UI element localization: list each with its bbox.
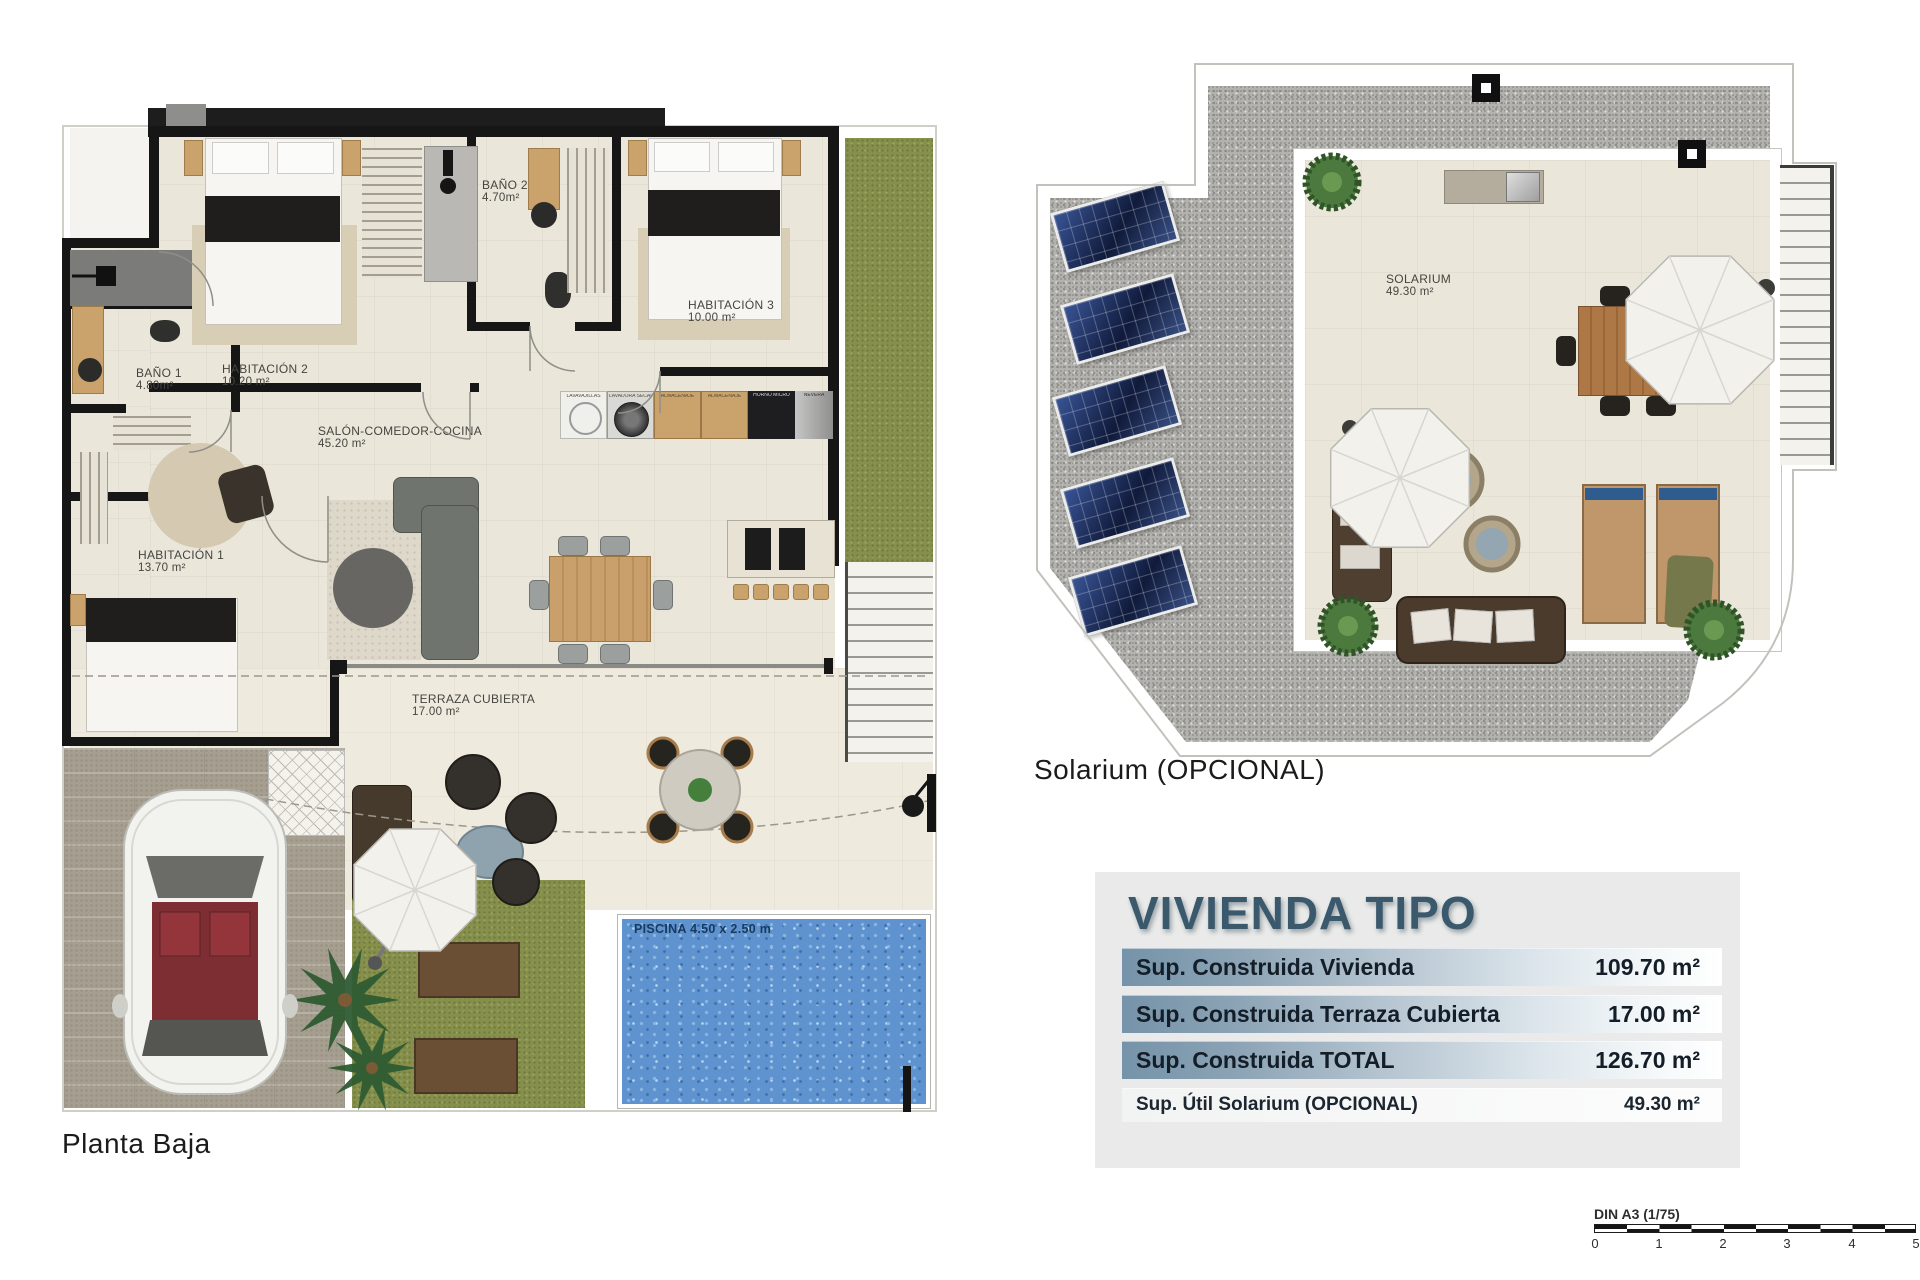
wall-segment	[149, 126, 159, 248]
wardrobe	[80, 452, 108, 544]
scale-bar-label-text: DIN A3 (1/75)	[1594, 1206, 1680, 1222]
room-name: TERRAZA CUBIERTA	[412, 692, 535, 706]
room-name: HABITACIÓN 2	[222, 362, 308, 376]
pool-label: PISCINA 4.50 x 2.50 m	[634, 922, 771, 937]
summary-row: Sup. Construida Vivienda 109.70 m²	[1122, 948, 1722, 986]
nightstand	[184, 140, 203, 176]
dining-chair	[653, 580, 673, 610]
floorplan-sheet: LAVAVAJILLAS LAVADORA SECADORA ALMACENAJ…	[0, 0, 1920, 1280]
entry-steps	[268, 750, 345, 836]
room-name: SALÓN-COMEDOR-COCINA	[318, 424, 482, 438]
scale-tick: 5	[1912, 1236, 1919, 1251]
summary-row-optional: Sup. Útil Solarium (OPCIONAL) 49.30 m²	[1122, 1088, 1722, 1122]
hob	[745, 528, 771, 570]
roof-stairs	[1780, 165, 1834, 465]
summary-row-value: 109.70 m²	[1595, 948, 1700, 986]
outdoor-sofa	[352, 785, 412, 905]
summary-row-value: 126.70 m²	[1595, 1041, 1700, 1079]
roof-vent-marker	[1678, 140, 1706, 168]
walkway	[70, 128, 150, 240]
scale-bar-label: DIN A3 (1/75)	[1594, 1206, 1918, 1222]
kitchen-module-label: ALMACENAJE	[656, 394, 699, 399]
sun-lounger	[1582, 484, 1646, 624]
scale-tick: 2	[1719, 1236, 1726, 1251]
wall-segment	[338, 658, 347, 674]
outdoor-chair	[1600, 286, 1630, 306]
sofa-cushion	[1340, 545, 1380, 569]
summary-title-text: VIVIENDA TIPO	[1128, 887, 1477, 939]
nightstand	[782, 140, 801, 176]
kitchen-module-label: LAVAVAJILLAS	[562, 394, 605, 399]
room-name: HABITACIÓN 1	[138, 548, 224, 562]
kitchen-module-dishwasher: LAVAVAJILLAS	[560, 391, 607, 439]
summary-row-label: Sup. Construida TOTAL	[1136, 1041, 1395, 1079]
hob	[779, 528, 805, 570]
room-label-solarium: SOLARIUM 49.30 m²	[1386, 272, 1451, 300]
wall-segment	[828, 126, 839, 566]
room-name: SOLARIUM	[1386, 272, 1451, 286]
pendant-fixture	[440, 178, 456, 194]
caption-text: Solarium (OPCIONAL)	[1034, 754, 1325, 785]
pool-label-text: PISCINA 4.50 x 2.50 m	[634, 922, 771, 936]
stool	[733, 584, 749, 600]
wall-segment	[148, 108, 665, 126]
kitchen-module-label: ALMACENAJE	[703, 394, 746, 399]
bath-counter	[528, 148, 560, 210]
sofa-cushion	[1410, 608, 1451, 644]
bed-blanket	[205, 196, 340, 242]
pillow	[212, 142, 269, 174]
bed-blanket	[648, 190, 780, 236]
room-area: 10.20 m²	[222, 376, 308, 390]
corner-sofa	[1332, 452, 1392, 602]
dining-chair	[529, 580, 549, 610]
sofa-cushion	[1495, 609, 1535, 643]
room-label-habitacion-1: HABITACIÓN 1 13.70 m²	[138, 548, 224, 576]
kitchen-module-storage: ALMACENAJE	[654, 391, 701, 439]
dining-chair	[600, 644, 630, 664]
pendant-fixture	[443, 150, 453, 176]
summary-row-value: 49.30 m²	[1624, 1088, 1700, 1122]
dining-table	[549, 556, 651, 642]
room-area: 4.70m²	[482, 192, 528, 206]
room-label-bano-1: BAÑO 1 4.80m²	[136, 366, 182, 394]
room-area: 49.30 m²	[1386, 286, 1451, 300]
wardrobe	[567, 148, 609, 293]
sun-lounger	[418, 942, 520, 998]
room-area: 17.00 m²	[412, 706, 535, 720]
wall-segment	[62, 737, 338, 746]
sink	[531, 202, 557, 228]
plan-caption-solarium: Solarium (OPCIONAL)	[1034, 754, 1325, 786]
grass-side	[845, 138, 933, 562]
lounger-headrest	[1585, 488, 1643, 500]
scale-tick: 4	[1848, 1236, 1855, 1251]
summary-row-value: 17.00 m²	[1608, 995, 1700, 1033]
room-area: 13.70 m²	[138, 562, 224, 576]
kitchen-module-label: NEVERA	[796, 393, 832, 398]
sofa-cushion	[1453, 609, 1493, 644]
pillow	[718, 142, 774, 172]
room-area: 45.20 m²	[318, 438, 482, 452]
scale-bar-ruler	[1594, 1224, 1916, 1233]
sofa-cushion	[1340, 500, 1386, 526]
sun-lounger	[414, 1038, 518, 1094]
room-label-habitacion-3: HABITACIÓN 3 10.00 m²	[688, 298, 774, 326]
scale-tick: 3	[1783, 1236, 1790, 1251]
plan-caption-planta-baja: Planta Baja	[62, 1128, 211, 1160]
kitchen-module-storage: ALMACENAJE	[701, 391, 748, 439]
kitchen-module-label: LAVADORA SECADORA	[609, 394, 652, 399]
sink	[78, 358, 102, 382]
roof-vent-marker	[1472, 74, 1500, 102]
room-label-terraza: TERRAZA CUBIERTA 17.00 m²	[412, 692, 535, 720]
summary-row-label: Sup. Construida Terraza Cubierta	[1136, 995, 1500, 1033]
room-name: BAÑO 1	[136, 366, 182, 380]
stool	[793, 584, 809, 600]
kitchen-module-oven: HORNO MICRO	[748, 391, 795, 439]
washer	[96, 266, 116, 286]
wall-segment	[575, 322, 621, 331]
kitchen-module-washer: LAVADORA SECADORA	[607, 391, 654, 439]
scale-bar: DIN A3 (1/75) 0 1 2 3 4 5	[1594, 1206, 1918, 1252]
summary-row: Sup. Construida Terraza Cubierta 17.00 m…	[1122, 995, 1722, 1033]
outdoor-chair	[1646, 286, 1676, 306]
wall-segment	[824, 658, 833, 674]
pillow	[277, 142, 334, 174]
bed-blanket	[86, 598, 236, 642]
stool	[813, 584, 829, 600]
dining-chair	[558, 644, 588, 664]
room-area: 10.00 m²	[688, 312, 774, 326]
room-name: BAÑO 2	[482, 178, 528, 192]
outdoor-chair	[1706, 336, 1726, 366]
laundry-area	[70, 250, 192, 306]
outdoor-sink	[1506, 172, 1540, 202]
summary-row: Sup. Construida TOTAL 126.70 m²	[1122, 1041, 1722, 1079]
outdoor-chair	[1646, 396, 1676, 416]
towel	[1664, 555, 1714, 629]
wall-segment	[62, 238, 159, 248]
nightstand	[342, 140, 361, 176]
kitchen-module-fridge: NEVERA	[795, 391, 833, 439]
swimming-pool	[618, 915, 930, 1108]
lounger-headrest	[1659, 488, 1717, 500]
room-label-habitacion-2: HABITACIÓN 2 10.20 m²	[222, 362, 308, 390]
caption-text: Planta Baja	[62, 1128, 211, 1159]
dining-chair	[600, 536, 630, 556]
wardrobe	[362, 148, 422, 278]
pillow	[654, 142, 710, 172]
outdoor-table	[1578, 306, 1706, 396]
exterior-stairs	[845, 562, 933, 762]
stool	[753, 584, 769, 600]
wall-segment	[612, 126, 621, 331]
room-label-bano-2: BAÑO 2 4.70m²	[482, 178, 528, 206]
wall-segment	[148, 126, 838, 137]
room-name: HABITACIÓN 3	[688, 298, 774, 312]
kitchen-module-label: HORNO MICRO	[749, 393, 794, 398]
toilet	[150, 320, 180, 342]
scale-tick: 0	[1591, 1236, 1598, 1251]
outdoor-chair	[1600, 396, 1630, 416]
wall-segment	[470, 383, 479, 392]
summary-title: VIVIENDA TIPO	[1128, 886, 1477, 940]
stool	[773, 584, 789, 600]
room-area: 4.80m²	[136, 380, 182, 394]
glazing-line	[338, 664, 830, 668]
dining-chair	[558, 536, 588, 556]
scale-tick: 1	[1655, 1236, 1662, 1251]
wall-segment	[660, 367, 838, 376]
outdoor-chair	[1556, 336, 1576, 366]
wardrobe	[113, 416, 191, 450]
sofa	[421, 505, 479, 660]
wall-segment	[467, 322, 530, 331]
summary-row-label: Sup. Útil Solarium (OPCIONAL)	[1136, 1088, 1418, 1122]
room-label-salon: SALÓN-COMEDOR-COCINA 45.20 m²	[318, 424, 482, 452]
nightstand	[70, 594, 86, 626]
nightstand	[628, 140, 647, 176]
summary-row-label: Sup. Construida Vivienda	[1136, 948, 1414, 986]
wall-segment	[62, 404, 126, 413]
